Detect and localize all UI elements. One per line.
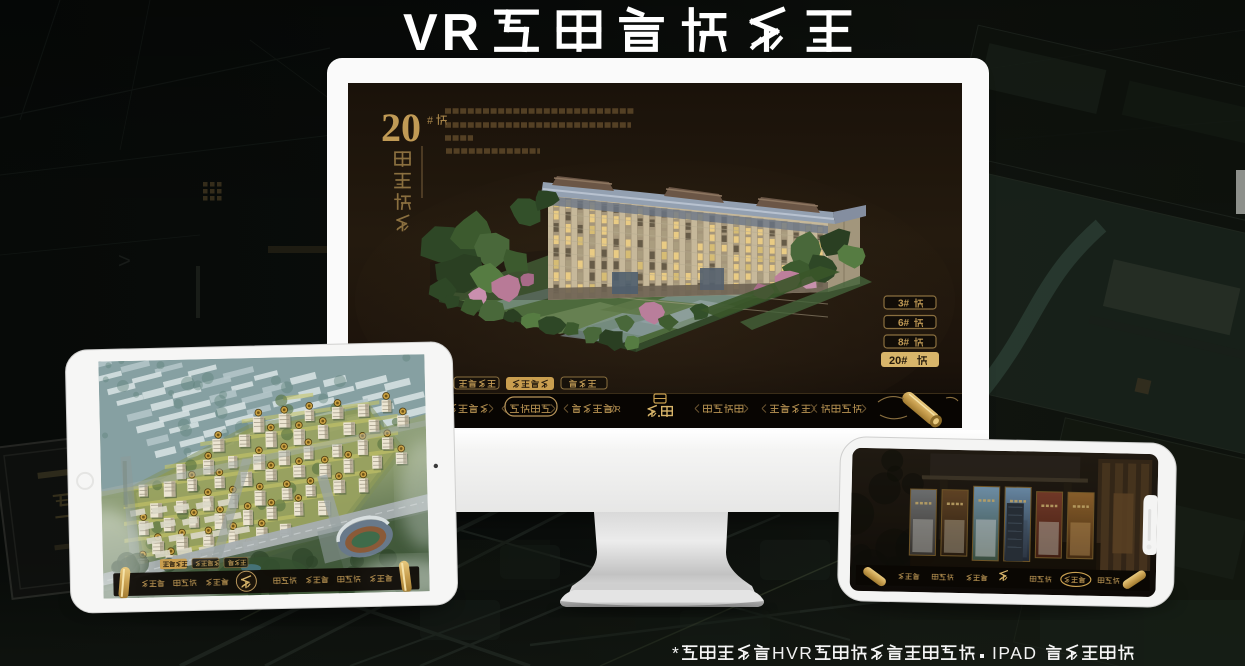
svg-text:>: > <box>118 248 131 273</box>
svg-text:#: # <box>427 113 433 127</box>
svg-text:20#: 20# <box>889 355 907 367</box>
svg-text:IPAD: IPAD <box>992 643 1038 663</box>
svg-text:6#: 6# <box>898 318 910 329</box>
svg-text:HVR: HVR <box>772 643 813 663</box>
svg-text:VR: VR <box>403 4 483 62</box>
svg-text:3#: 3# <box>898 299 910 310</box>
svg-text:20: 20 <box>381 105 421 150</box>
svg-text:8#: 8# <box>898 338 910 349</box>
svg-text:VR: VR <box>609 404 621 414</box>
svg-text:*: * <box>672 643 680 663</box>
